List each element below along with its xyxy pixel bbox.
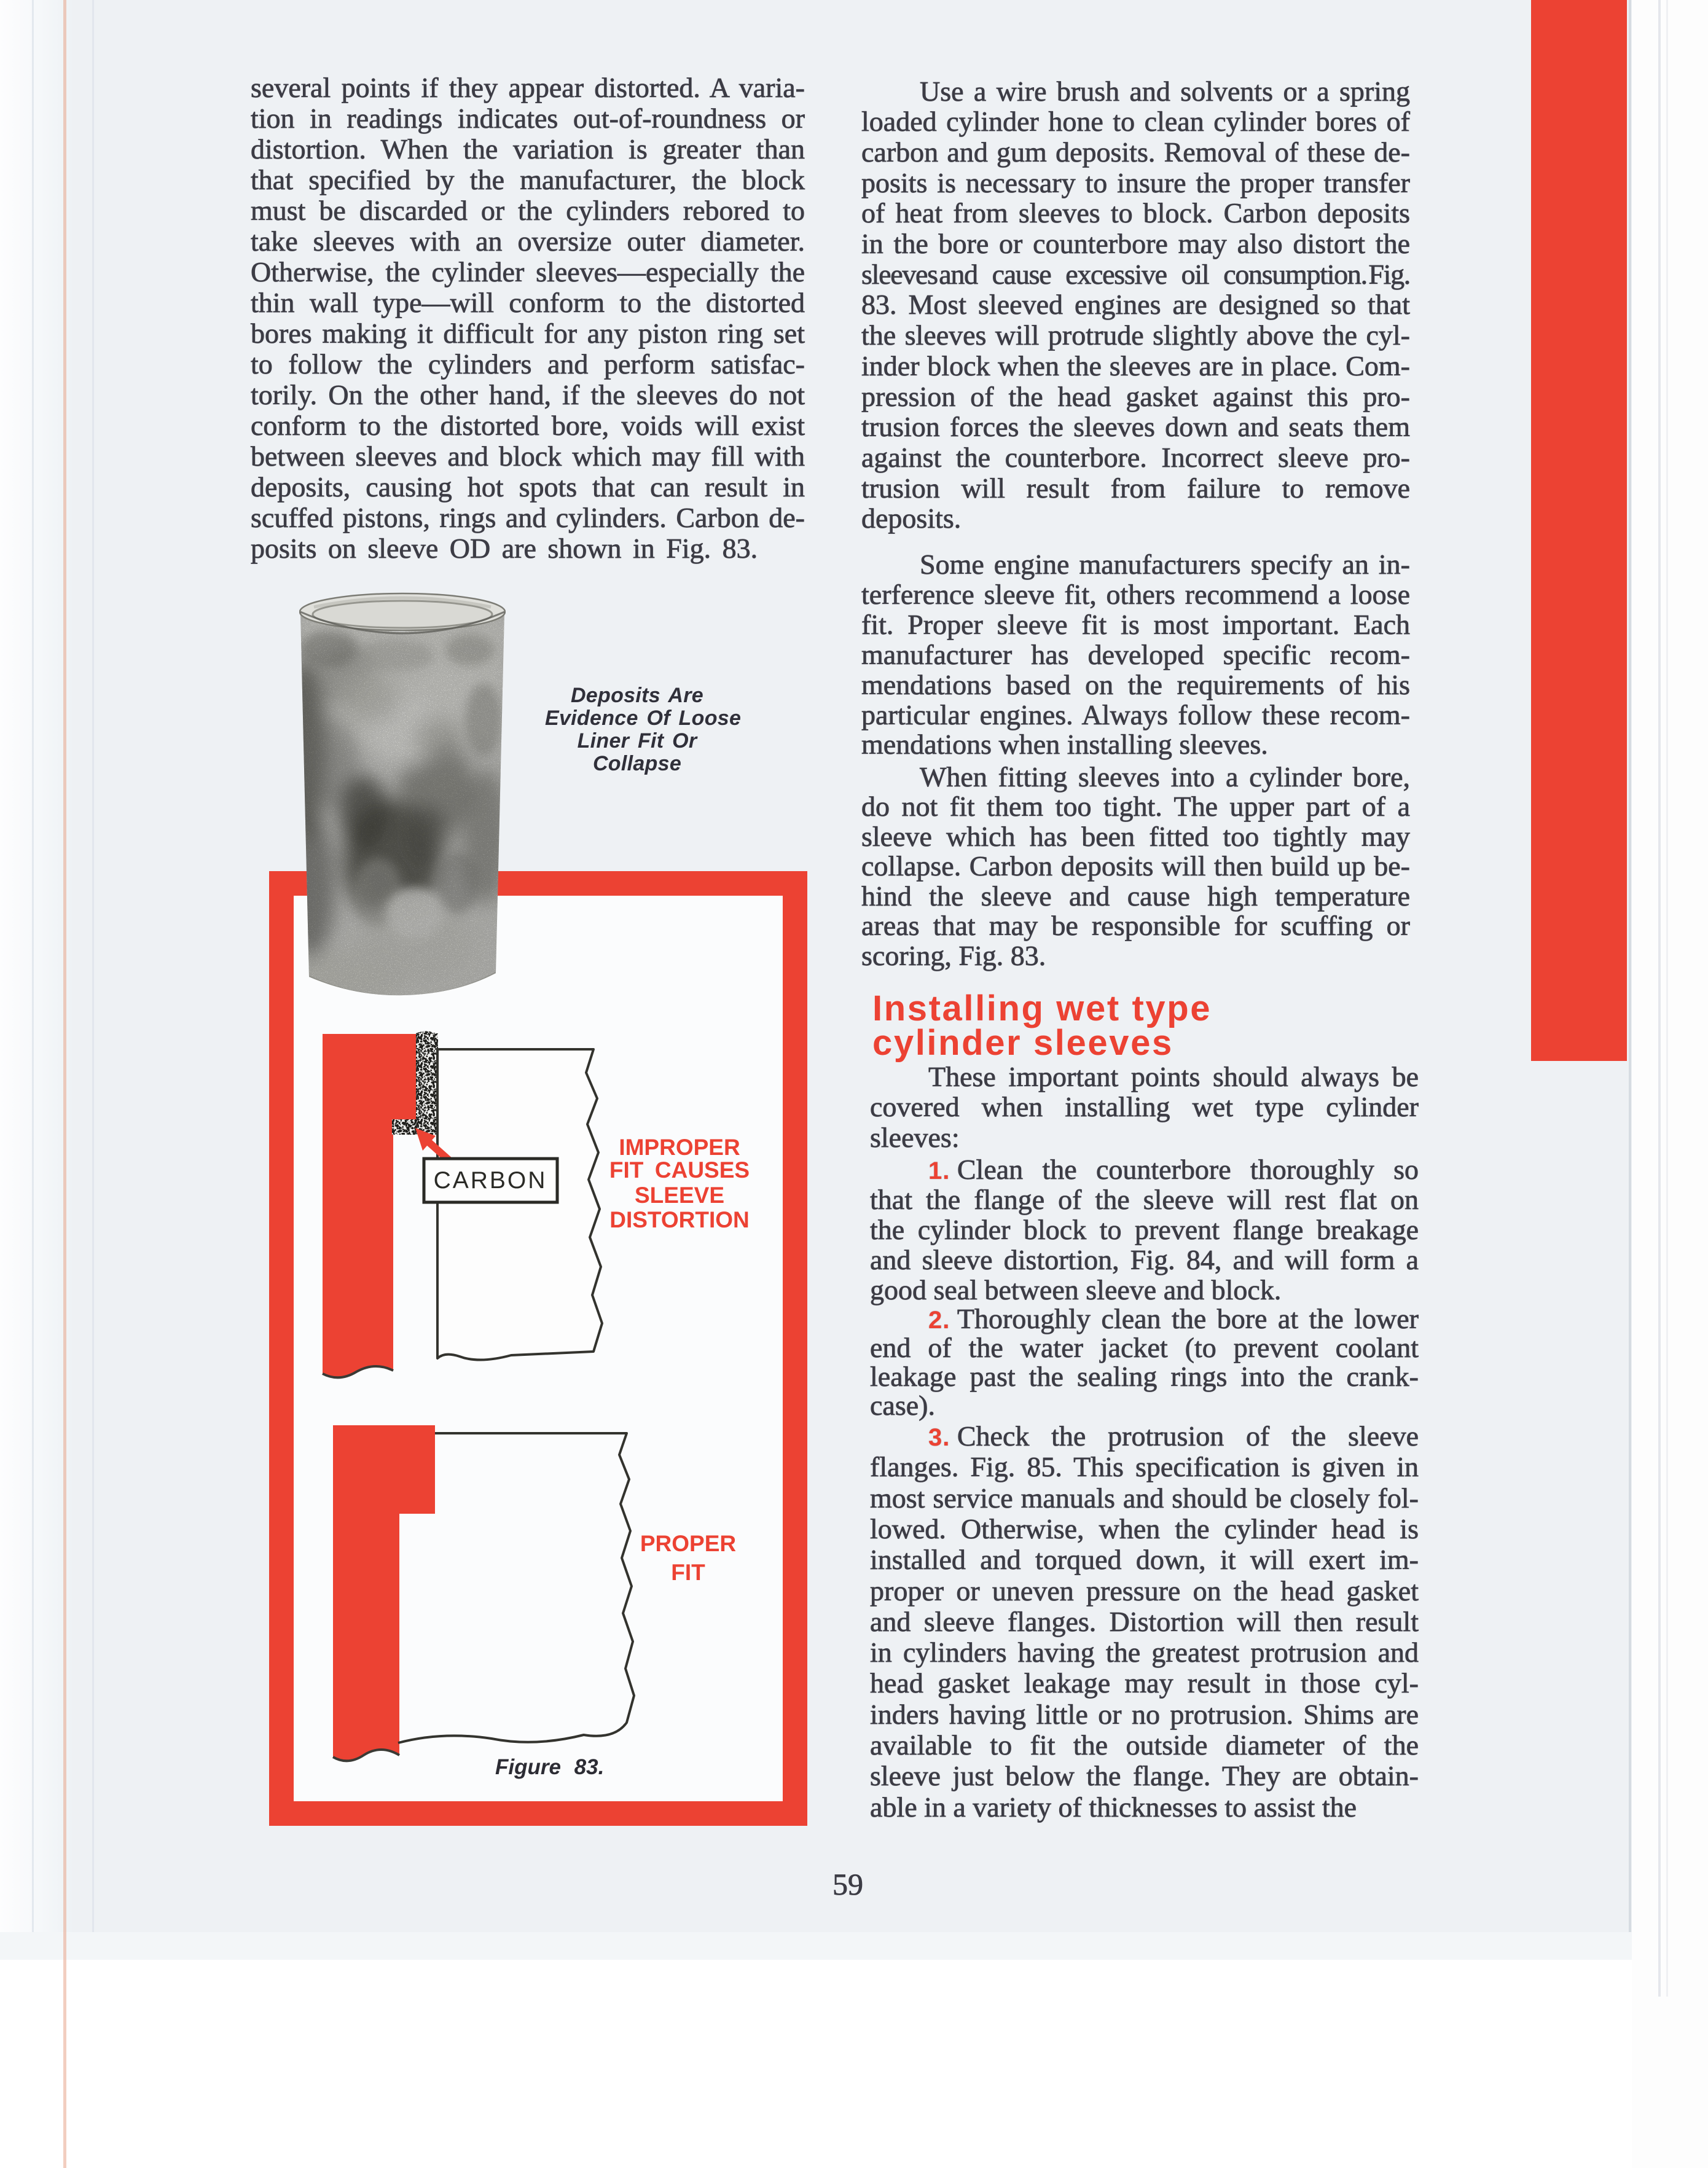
svg-text:CARBON: CARBON	[434, 1167, 547, 1194]
